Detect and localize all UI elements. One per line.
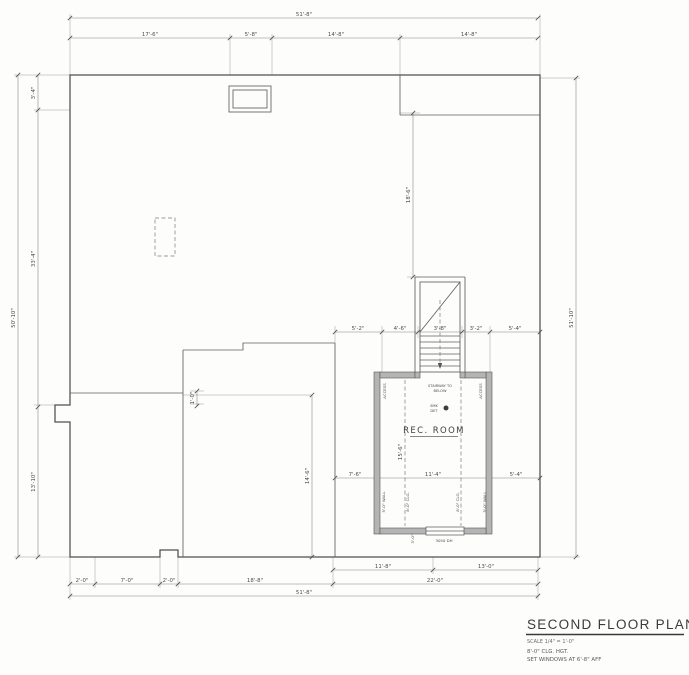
window-3050 bbox=[426, 527, 464, 535]
staircase bbox=[415, 277, 465, 372]
dim-right-overall: 51'-10" bbox=[569, 308, 575, 328]
dim-room-row: 7'-6" bbox=[349, 472, 362, 478]
dim-left-segment: 3'-4" bbox=[31, 87, 37, 100]
dim-bottom-segment: 22'-0" bbox=[427, 578, 443, 584]
dim-left-segment: 13'-10" bbox=[31, 472, 37, 492]
dim-top-segment: 5'-8" bbox=[245, 32, 258, 38]
stair-note-line2: BELOW bbox=[434, 389, 447, 393]
floor-plan-drawing: 51'-8" 17'-6" 5'-8" 14'-8" 14'-8" 50'-10… bbox=[0, 0, 689, 675]
floor-plan-page: 51'-8" 17'-6" 5'-8" 14'-8" 14'-8" 50'-10… bbox=[0, 0, 689, 675]
clg-note-left: 8'-0" CLG. bbox=[405, 492, 410, 512]
chimney-chase-dashed bbox=[155, 218, 175, 256]
dim-bottom-right: 13'-0" bbox=[478, 564, 494, 570]
dimension-lines bbox=[16, 16, 578, 598]
scale-note: SCALE 1/4" = 1'-0" bbox=[527, 639, 574, 645]
ceiling-break-lines bbox=[405, 380, 461, 526]
dim-room-row: 11'-4" bbox=[425, 472, 441, 478]
chimney bbox=[229, 86, 271, 112]
dim-bottom-right: 11'-8" bbox=[375, 564, 391, 570]
dim-top-segment: 17'-6" bbox=[142, 32, 158, 38]
dim-above-room: 3'-8" bbox=[434, 326, 447, 332]
dim-above-room: 4'-6" bbox=[394, 326, 407, 332]
building-outline bbox=[55, 75, 540, 557]
access-label-right: ACCESS bbox=[478, 383, 483, 399]
dim-top-segment: 14'-8" bbox=[328, 32, 344, 38]
smoke-note-line1: SMK bbox=[430, 404, 438, 408]
dimension-ticks bbox=[16, 16, 578, 598]
dim-interior-left: 14'-6" bbox=[305, 468, 311, 484]
dim-bottom-segment: 2'-0" bbox=[163, 578, 176, 584]
dim-left-overall: 50'-10" bbox=[11, 308, 17, 328]
room-name: REC. ROOM bbox=[403, 426, 465, 436]
window-offset-dim: 3'-0" bbox=[410, 534, 415, 543]
dimension-extension-lines bbox=[14, 14, 580, 600]
ceiling-height-note: 8'-0" CLG. HGT. bbox=[527, 649, 569, 655]
drawing-title: SECOND FLOOR PLAN bbox=[527, 617, 689, 632]
stair-note-line1: STAIRWAY TO bbox=[428, 384, 452, 388]
dim-room-row: 5'-4" bbox=[510, 472, 523, 478]
smoke-detector-icon bbox=[444, 406, 449, 411]
dim-above-room: 5'-2" bbox=[352, 326, 365, 332]
clg-note-right: 8'-0" CLG. bbox=[455, 492, 460, 512]
dim-above-room: 3'-2" bbox=[470, 326, 483, 332]
window-label: 3050 DH bbox=[435, 538, 452, 543]
wall-height-note-left: 5'-0" WALL bbox=[381, 491, 386, 513]
dim-bottom-segment: 2'-0" bbox=[76, 578, 89, 584]
smoke-note-line2: DET bbox=[430, 409, 438, 413]
dim-left-segment: 33'-4" bbox=[31, 251, 37, 267]
dim-above-room: 5'-4" bbox=[509, 326, 522, 332]
dim-bottom-overall: 51'-8" bbox=[296, 590, 312, 596]
dim-top-overall: 51'-8" bbox=[296, 12, 312, 18]
rec-room-walls bbox=[374, 372, 492, 534]
wall-height-note-right: 5'-0" WALL bbox=[482, 491, 487, 513]
dim-bottom-segment: 7'-0" bbox=[121, 578, 134, 584]
dim-bottom-segment: 18'-8" bbox=[247, 578, 263, 584]
dim-top-segment: 14'-8" bbox=[461, 32, 477, 38]
dim-interior-step: 1'-0" bbox=[190, 392, 196, 405]
dim-room-length: 15'-6" bbox=[398, 444, 404, 460]
window-height-note: SET WINDOWS AT 6'-8" AFF bbox=[527, 657, 601, 663]
dim-stair-height: 18'-6" bbox=[406, 187, 412, 203]
access-label-left: ACCESS bbox=[382, 383, 387, 399]
